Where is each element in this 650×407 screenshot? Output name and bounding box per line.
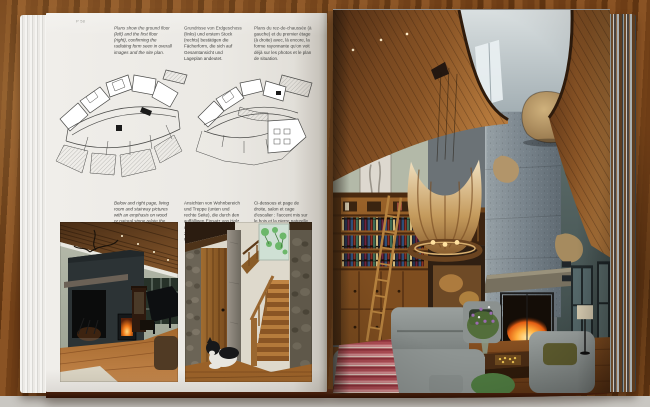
photo-stairway-dog xyxy=(185,222,312,382)
right-page-edges xyxy=(610,14,636,392)
left-page-edges xyxy=(20,15,46,393)
caption-plans-en: Plans show the ground floor (left) and t… xyxy=(114,25,172,55)
book-photo-scene: P 58 Plans show the ground floor (left) … xyxy=(0,0,650,407)
photo-living-room-fireplace xyxy=(60,222,178,382)
left-page: P 58 Plans show the ground floor (left) … xyxy=(46,13,327,392)
stone-wall-right xyxy=(289,230,312,382)
newel-post xyxy=(251,318,257,366)
ground-floor-plan xyxy=(54,67,192,179)
right-page xyxy=(333,9,610,393)
caption-plans-fr: Plans du rez-de-chaussée (à gauche) et d… xyxy=(254,25,312,61)
photo-great-room xyxy=(333,10,610,393)
open-book: P 58 Plans show the ground floor (left) … xyxy=(20,6,638,396)
stove-fire xyxy=(121,318,133,336)
armchair xyxy=(154,336,178,370)
caption-plans-de: Grundrisse von Erdgeschoss (links) und e… xyxy=(184,25,242,61)
first-floor-plan xyxy=(194,73,318,168)
page-number: P 58 xyxy=(76,19,85,24)
glass-artwork xyxy=(259,224,289,260)
stone-wall-left xyxy=(185,244,201,382)
